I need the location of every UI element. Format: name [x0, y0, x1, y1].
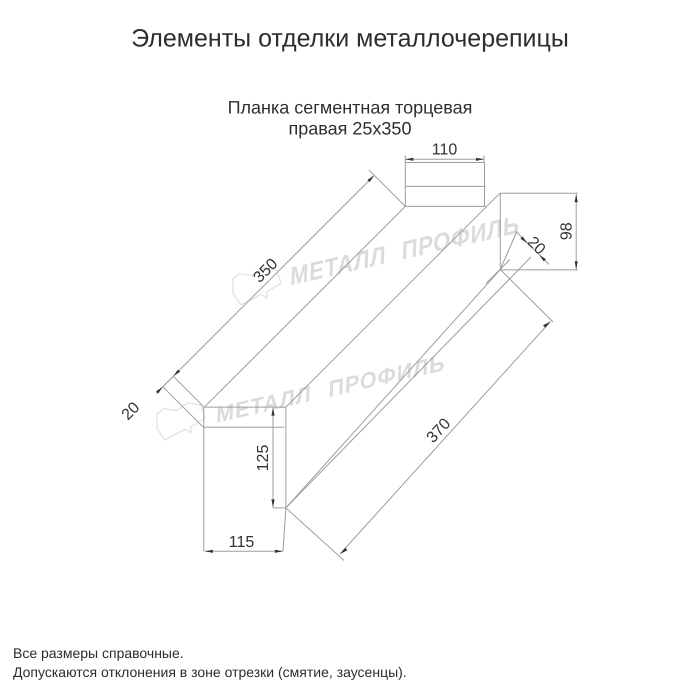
svg-text:Планка сегментная торцевая: Планка сегментная торцевая — [228, 98, 473, 118]
svg-text:370: 370 — [424, 415, 455, 446]
svg-text:Элементы отделки металлочерепи: Элементы отделки металлочерепицы — [131, 25, 569, 53]
svg-text:правая 25х350: правая 25х350 — [289, 119, 412, 139]
svg-text:125: 125 — [255, 445, 272, 472]
svg-text:20: 20 — [524, 234, 549, 259]
svg-text:98: 98 — [558, 222, 575, 240]
svg-text:350: 350 — [250, 255, 281, 286]
svg-text:Допускаются отклонения в зоне: Допускаются отклонения в зоне отрезки (с… — [13, 664, 407, 680]
svg-text:110: 110 — [432, 142, 458, 159]
svg-text:Все размеры справочные.: Все размеры справочные. — [13, 645, 184, 661]
svg-text:115: 115 — [229, 534, 255, 551]
svg-text:МЕТАЛЛ ПРОФИЛЬ: МЕТАЛЛ ПРОФИЛЬ — [290, 210, 520, 292]
svg-text:20: 20 — [119, 399, 144, 424]
